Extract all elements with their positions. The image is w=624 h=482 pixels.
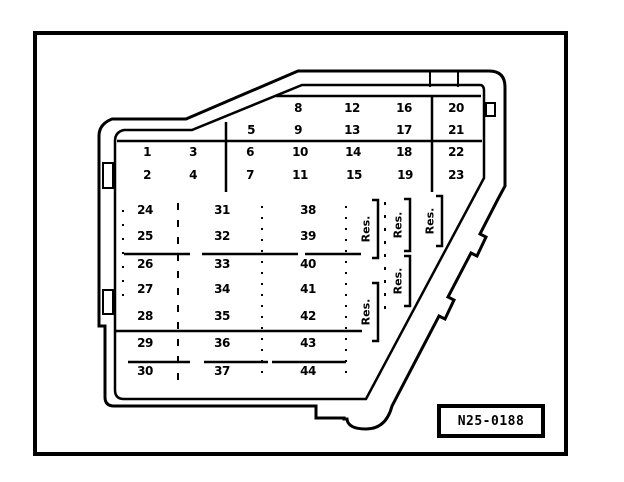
dotted-separators (123, 202, 385, 382)
figure-label-box: N25-0188 (437, 404, 545, 438)
fuse-number: 7 (246, 169, 254, 181)
reserve-bracket-4 (404, 256, 410, 306)
fuse-number: 3 (189, 146, 197, 158)
fuse-number: 27 (137, 283, 153, 295)
fuse-number: 21 (448, 124, 464, 136)
reserve-bracket-5 (436, 196, 442, 246)
fuse-number: 18 (396, 146, 412, 158)
fuse-number: 14 (345, 146, 361, 158)
fuse-number: 11 (292, 169, 308, 181)
fuse-number: 37 (214, 365, 230, 377)
fuse-number: 15 (346, 169, 362, 181)
fuse-number: 2 (143, 169, 151, 181)
fuse-number: 26 (137, 258, 153, 270)
reserve-bracket-2 (372, 283, 378, 341)
fuse-number: 34 (214, 283, 230, 295)
fuse-number: 5 (247, 124, 255, 136)
fuse-number: 43 (300, 337, 316, 349)
fuse-number: 29 (137, 337, 153, 349)
reserve-bracket-1 (372, 200, 378, 258)
reserve-label: Res. (361, 299, 372, 326)
fuse-number: 17 (396, 124, 412, 136)
fuse-number: 13 (344, 124, 360, 136)
reserve-label: Res. (393, 212, 404, 239)
fuse-number: 44 (300, 365, 316, 377)
reserve-label: Res. (425, 208, 436, 235)
reserve-label: Res. (393, 268, 404, 295)
left-clip-bottom (103, 290, 113, 314)
fuse-number: 19 (397, 169, 413, 181)
fuse-number: 16 (396, 102, 412, 114)
left-clip-top (103, 163, 113, 188)
fuse-number: 33 (214, 258, 230, 270)
fuse-number: 20 (448, 102, 464, 114)
fuse-number: 9 (294, 124, 302, 136)
fuse-number: 22 (448, 146, 464, 158)
fuse-number: 39 (300, 230, 316, 242)
fuse-number: 36 (214, 337, 230, 349)
right-clip (486, 103, 495, 116)
fuse-number: 38 (300, 204, 316, 216)
fuse-number: 28 (137, 310, 153, 322)
reserve-bracket-3 (404, 199, 410, 251)
fuse-panel-figure-page: 8 12 16 20 5 9 13 17 21 1 3 6 10 14 18 2… (0, 0, 624, 482)
fuse-number: 6 (246, 146, 254, 158)
fuse-number: 32 (214, 230, 230, 242)
fuse-number: 30 (137, 365, 153, 377)
reserve-label: Res. (361, 216, 372, 243)
fuse-number: 24 (137, 204, 153, 216)
fuse-number: 25 (137, 230, 153, 242)
figure-label-text: N25-0188 (458, 414, 525, 429)
fuse-number: 12 (344, 102, 360, 114)
fuse-number: 8 (294, 102, 302, 114)
fuse-number: 35 (214, 310, 230, 322)
fuse-number: 41 (300, 283, 316, 295)
fuse-number: 10 (292, 146, 308, 158)
fuse-number: 42 (300, 310, 316, 322)
fuse-number: 23 (448, 169, 464, 181)
fuse-number: 40 (300, 258, 316, 270)
fuse-number: 1 (143, 146, 151, 158)
fuse-number: 4 (189, 169, 197, 181)
fuse-number: 31 (214, 204, 230, 216)
